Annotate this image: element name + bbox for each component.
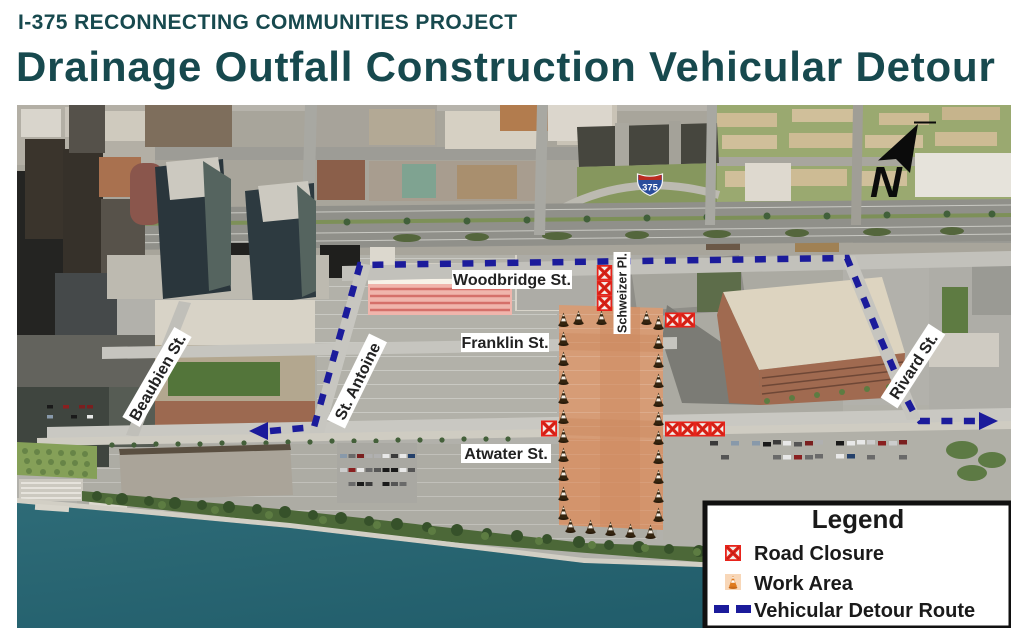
svg-text:Franklin St.: Franklin St. [461, 335, 548, 352]
svg-text:375: 375 [642, 183, 659, 194]
svg-text:Woodbridge St.: Woodbridge St. [453, 272, 571, 289]
svg-text:Vehicular Detour Route: Vehicular Detour Route [754, 600, 975, 622]
svg-text:N: N [870, 158, 903, 207]
svg-text:Atwater St.: Atwater St. [464, 446, 548, 463]
svg-text:Work Area: Work Area [754, 573, 854, 595]
svg-text:Legend: Legend [812, 504, 904, 534]
svg-text:Road Closure: Road Closure [754, 543, 884, 565]
svg-text:Schweizer Pl.: Schweizer Pl. [616, 253, 630, 333]
